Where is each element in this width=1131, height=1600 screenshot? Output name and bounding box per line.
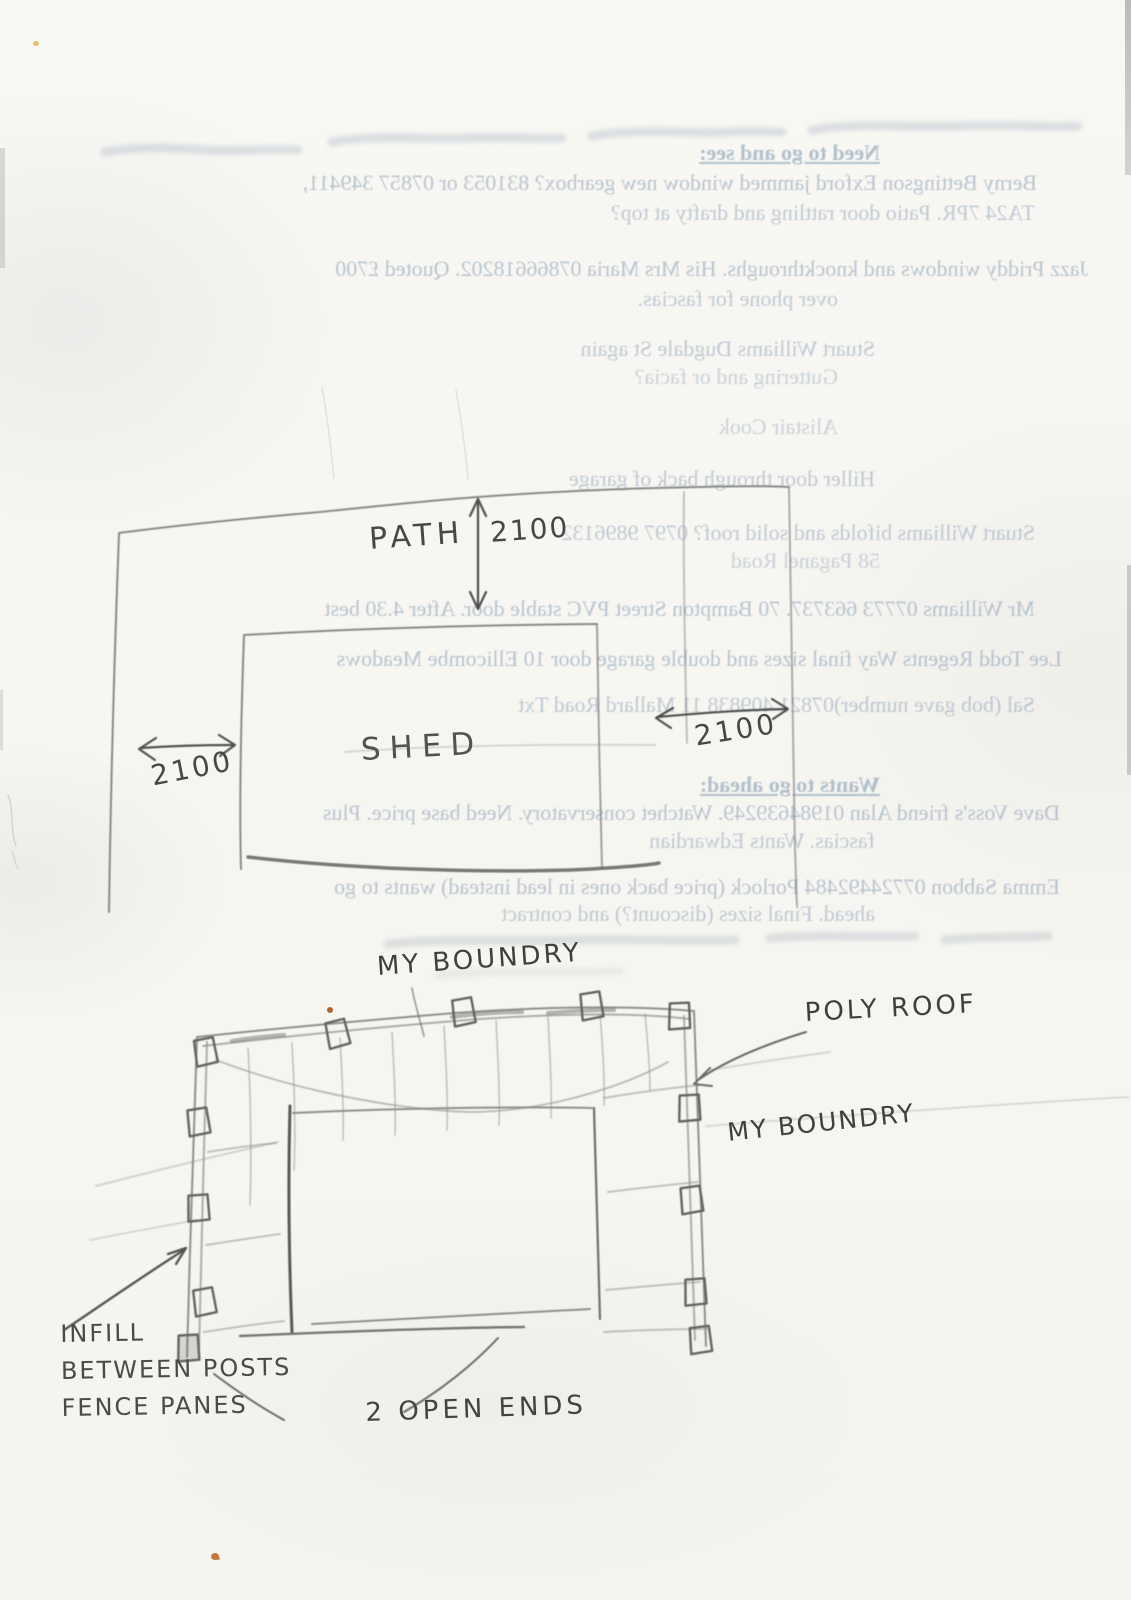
- poly-roof-ribs: [248, 1014, 650, 1205]
- infill-note: INFILL BETWEEN POSTS FENCE PANES: [60, 1312, 292, 1427]
- shed-label: SHED: [360, 726, 484, 768]
- scan-edge-artifact: [0, 148, 5, 268]
- illegible-scribbles: [105, 125, 1078, 975]
- infill-note-line2: BETWEEN POSTS: [61, 1349, 292, 1390]
- infill-note-line3: FENCE PANES: [61, 1386, 292, 1427]
- label-leader-lines: [214, 988, 806, 1420]
- path-label: PATH: [368, 515, 465, 557]
- scan-edge-artifact: [1127, 565, 1131, 775]
- scan-edge-artifact: [0, 690, 3, 750]
- paper-speck-orange: [211, 1553, 219, 1560]
- right-boundary-fence: [604, 1011, 1128, 1346]
- paper-speck-yellow: [33, 41, 39, 46]
- infill-note-line1: INFILL: [60, 1312, 291, 1353]
- path-dimension-label: 2100: [489, 510, 570, 548]
- paper-speck-orange: [327, 1007, 333, 1013]
- scanned-note-page: Need to go and see: Berny Bettingson Exf…: [0, 0, 1131, 1600]
- scan-edge-artifact: [1125, 0, 1131, 175]
- poly-roof-edge: [216, 1060, 668, 1112]
- path-dimension-arrow: [470, 499, 486, 609]
- left-boundary-fence: [90, 1037, 284, 1357]
